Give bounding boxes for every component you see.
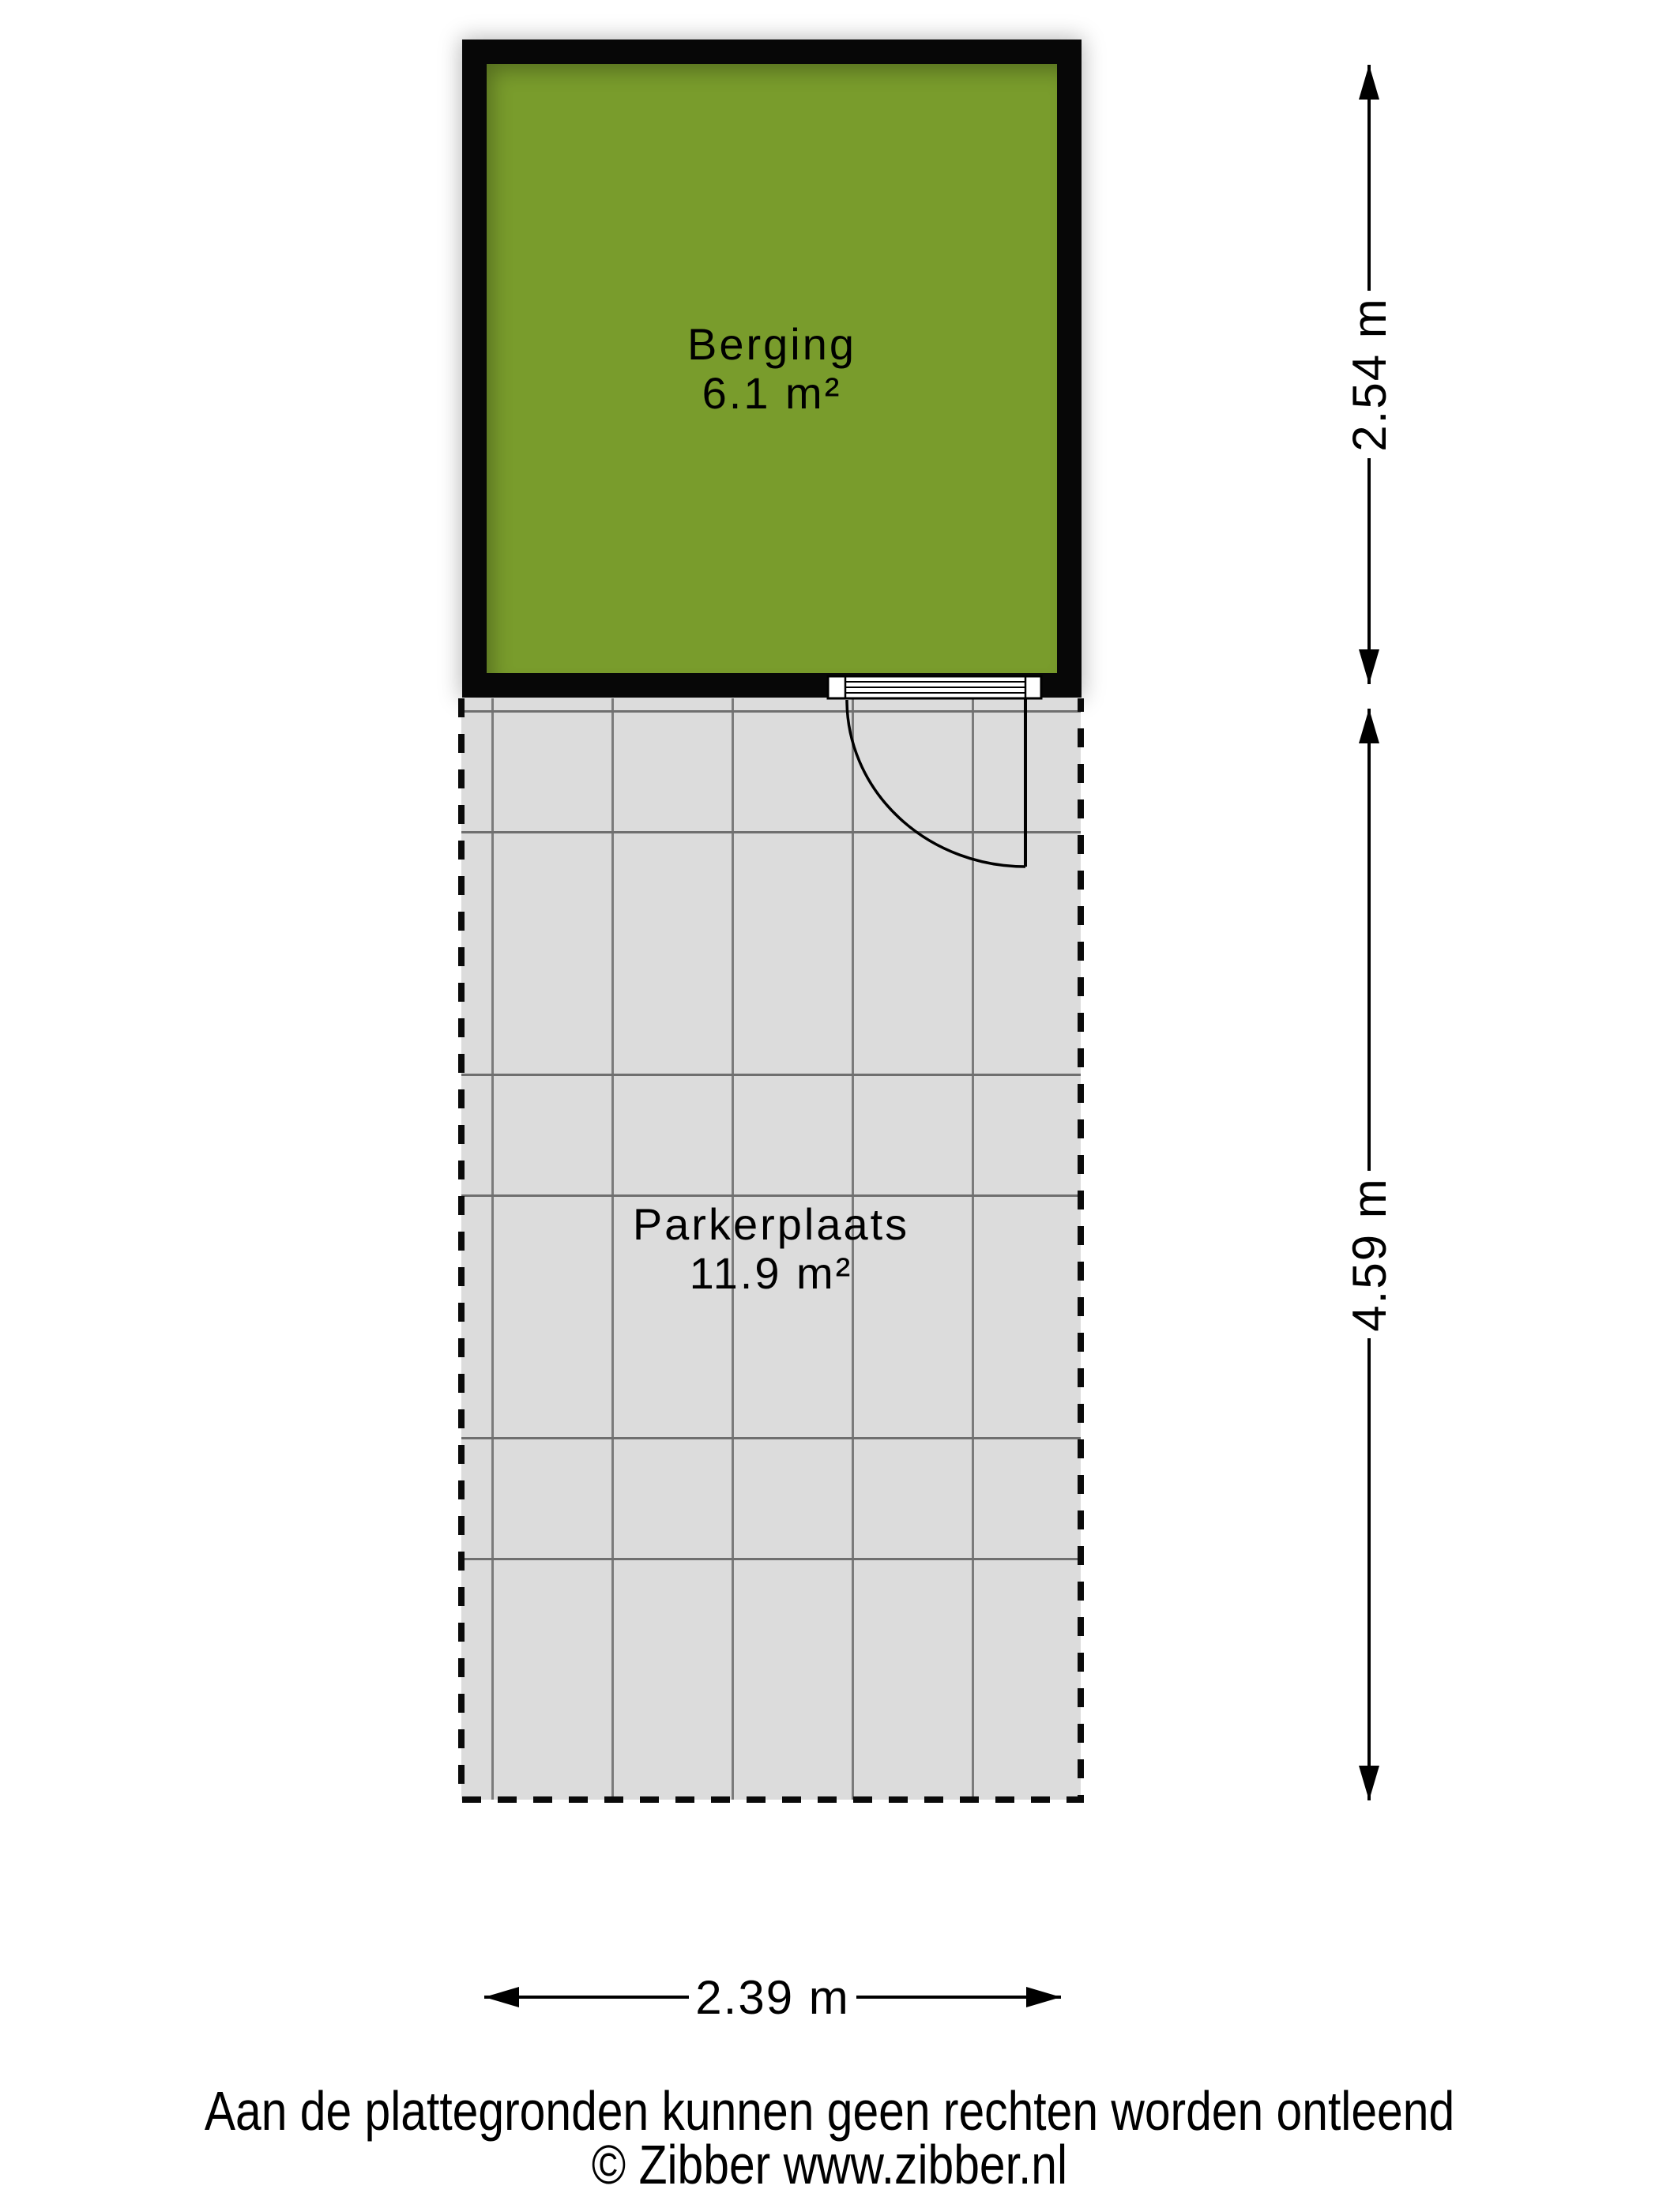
arrowhead-up-icon bbox=[1359, 65, 1379, 100]
footer-credit: © Zibber www.zibber.nl bbox=[133, 2138, 1526, 2191]
footer-disclaimer: Aan de plattegronden kunnen geen rechten… bbox=[133, 2084, 1526, 2138]
floorplan-canvas: Berging 6.1 m² Parkerplaats 11.9 m² bbox=[0, 0, 1659, 2212]
room-parkerplaats-name: Parkerplaats bbox=[633, 1200, 909, 1249]
arrowhead-left-icon bbox=[484, 1987, 519, 2007]
room-parkerplaats-label: Parkerplaats 11.9 m² bbox=[633, 1200, 909, 1298]
room-parkerplaats-floor: Parkerplaats 11.9 m² bbox=[461, 698, 1081, 1800]
arrowhead-down-icon bbox=[1359, 649, 1379, 684]
dimension-239: 2.39 m bbox=[484, 1971, 1061, 2024]
room-berging-floor: Berging 6.1 m² bbox=[487, 64, 1057, 673]
dimension-459: 4.59 m bbox=[1343, 709, 1396, 1800]
dimension-label-459: 4.59 m bbox=[1343, 1177, 1396, 1331]
footer: Aan de plattegronden kunnen geen rechten… bbox=[133, 2084, 1526, 2191]
room-berging-label: Berging 6.1 m² bbox=[687, 320, 856, 418]
dimension-254: 2.54 m bbox=[1343, 65, 1396, 684]
room-berging-name: Berging bbox=[687, 320, 856, 369]
room-berging-walls: Berging 6.1 m² bbox=[462, 39, 1082, 698]
dimension-label-239: 2.39 m bbox=[695, 1971, 849, 2024]
arrowhead-down-icon bbox=[1359, 1766, 1379, 1800]
room-berging-area: 6.1 m² bbox=[687, 369, 856, 418]
arrowhead-right-icon bbox=[1026, 1987, 1061, 2007]
dimension-label-254: 2.54 m bbox=[1343, 297, 1396, 451]
arrowhead-up-icon bbox=[1359, 709, 1379, 743]
room-parkerplaats-area: 11.9 m² bbox=[633, 1249, 909, 1298]
